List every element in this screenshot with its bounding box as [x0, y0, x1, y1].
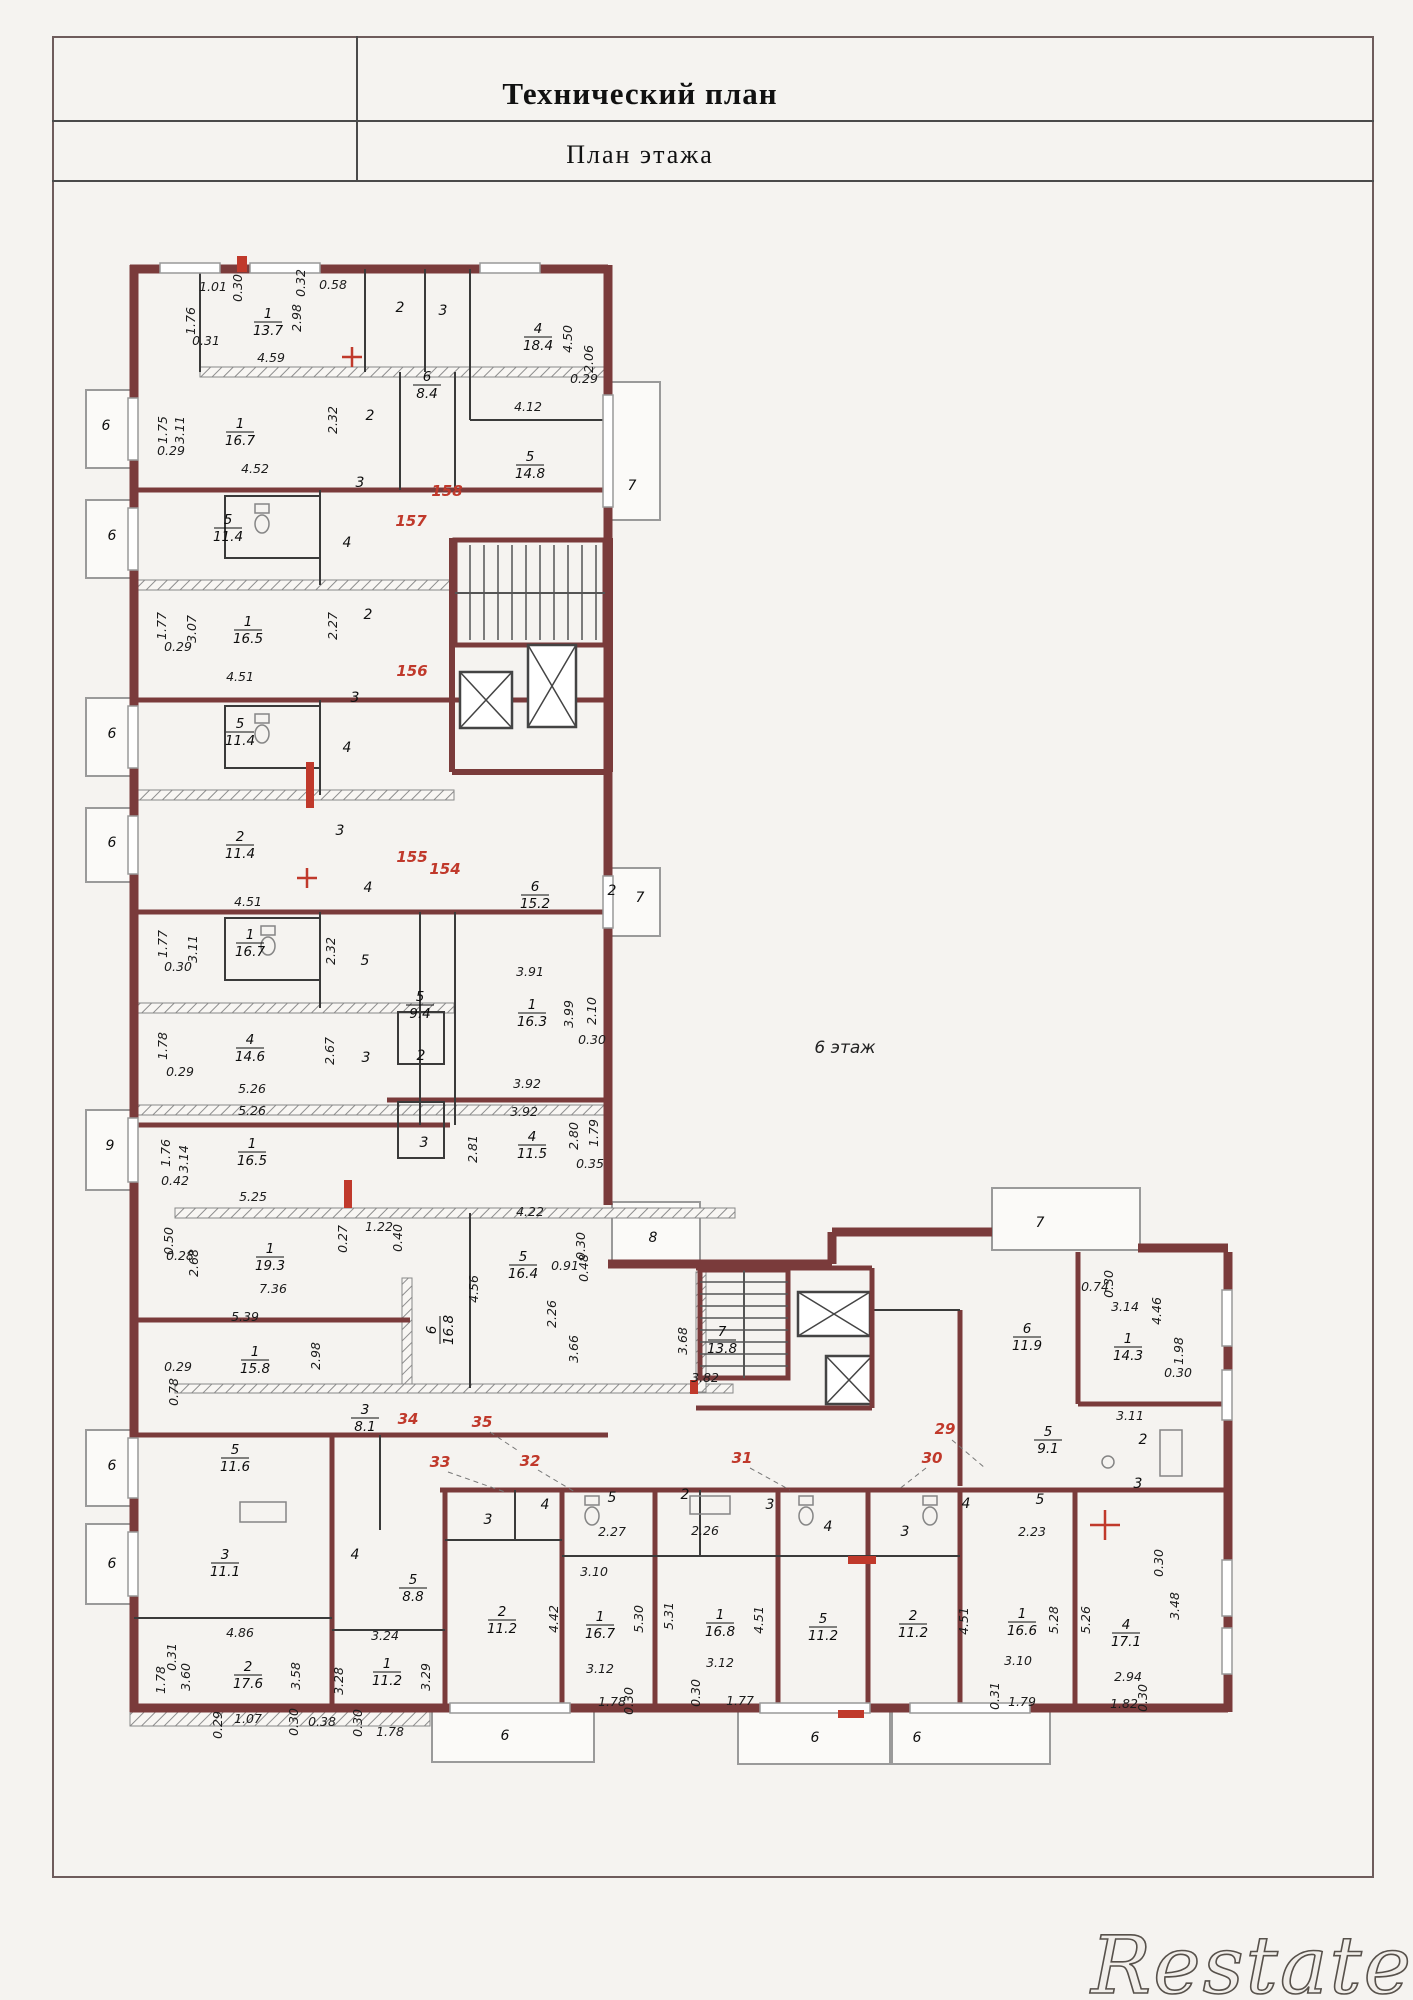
room-number: 1: [716, 1607, 725, 1623]
room-number: 4: [528, 1129, 537, 1145]
room-number: 5: [519, 1249, 528, 1265]
dimension-label: 2.27: [598, 1524, 626, 1539]
room-area: 11.9: [1012, 1338, 1042, 1354]
elevators-1: [452, 538, 610, 772]
room-number-label: 3: [484, 1512, 493, 1528]
room-label: 511.4: [225, 716, 255, 749]
room-label: 516.4: [508, 1249, 538, 1282]
watermark: Restate: [1091, 1926, 1413, 2000]
room-number: 6: [423, 369, 432, 385]
dimension-label: 2.32: [323, 937, 338, 965]
dimension-label: 1.76: [158, 1139, 173, 1167]
room-label: 616.8: [424, 1315, 457, 1345]
room-number-label: 3: [766, 1497, 775, 1513]
apartment-number: 30: [922, 1449, 943, 1467]
room-number: 5: [416, 989, 425, 1005]
room-number-label: 9: [106, 1138, 115, 1154]
dimension-label: 3.92: [510, 1104, 538, 1119]
room-number: 1: [248, 1136, 257, 1152]
staircase-2: [700, 1270, 788, 1378]
room-number-label: 7: [1036, 1215, 1045, 1231]
room-label: 211.2: [898, 1608, 928, 1641]
dimension-label: 0.48: [576, 1254, 591, 1282]
dimension-label: 1.77: [154, 612, 169, 640]
dimension-label: 0.30: [1151, 1549, 1166, 1577]
room-number: 2: [909, 1608, 918, 1624]
room-area: 17.1: [1111, 1634, 1141, 1650]
floor-plan: 6 этаж 1.010.300.322.980.581.760.314.592…: [0, 0, 1413, 2000]
room-area: 16.4: [508, 1266, 538, 1282]
room-area: 8.4: [416, 386, 437, 402]
dimension-label: 0.78: [166, 1378, 181, 1406]
dimension-label: 2.94: [1114, 1669, 1142, 1684]
dimension-label: 0.30: [1164, 1365, 1192, 1380]
room-area: 19.3: [255, 1258, 285, 1274]
apartment-number: 155: [396, 848, 427, 866]
apartment-number: 156: [396, 662, 427, 680]
dimension-label: 0.31: [987, 1682, 1002, 1710]
room-label: 514.8: [515, 449, 545, 482]
room-number: 3: [361, 1402, 370, 1418]
room-area: 11.1: [210, 1564, 240, 1580]
dimension-label: 3.10: [1004, 1653, 1032, 1668]
room-area: 16.6: [1007, 1623, 1037, 1639]
dimension-label: 3.10: [580, 1564, 608, 1579]
room-area: 11.2: [487, 1621, 517, 1637]
room-number: 5: [819, 1611, 828, 1627]
dimension-label: 3.12: [586, 1661, 614, 1676]
room-label: 713.8: [707, 1324, 737, 1357]
room-number: 2: [498, 1604, 507, 1620]
room-area: 11.2: [372, 1673, 402, 1689]
dimension-label: 2.06: [581, 345, 596, 373]
room-label: 119.3: [255, 1241, 285, 1274]
dimension-label: 0.30: [688, 1679, 703, 1707]
room-label: 115.8: [240, 1344, 270, 1377]
room-number-label: 5: [1036, 1492, 1045, 1508]
room-area: 15.2: [520, 896, 550, 912]
dimension-label: 4.52: [241, 461, 269, 476]
dimension-label: 0.29: [210, 1711, 225, 1739]
room-number-label: 5: [608, 1490, 617, 1506]
room-area: 16.8: [441, 1315, 457, 1345]
dimension-label: 2.27: [325, 612, 340, 640]
dimension-label: 1.98: [1171, 1337, 1186, 1365]
room-number-label: 2: [681, 1487, 690, 1503]
dimension-label: 1.76: [183, 307, 198, 335]
dimension-label: 1.79: [1008, 1694, 1036, 1709]
room-number-label: 3: [1134, 1476, 1143, 1492]
room-number-label: 2: [396, 300, 405, 316]
dimension-label: 2.98: [289, 304, 304, 332]
dimension-label: 1.75: [155, 416, 170, 444]
room-number: 1: [528, 997, 537, 1013]
dimension-label: 5.26: [1078, 1606, 1093, 1634]
apartment-number: 158: [431, 482, 462, 500]
room-number-label: 2: [608, 883, 617, 899]
dimension-label: 5.26: [238, 1103, 266, 1118]
room-number-label: 6: [811, 1730, 820, 1746]
room-number-label: 6: [108, 726, 117, 742]
dimension-label: 4.22: [516, 1204, 544, 1219]
room-area: 13.7: [253, 323, 283, 339]
dimension-label: 2.26: [544, 1300, 559, 1328]
room-label: 418.4: [523, 321, 553, 354]
room-area: 9.4: [409, 1006, 430, 1022]
room-number-label: 3: [356, 475, 365, 491]
room-label: 38.1: [351, 1402, 379, 1435]
room-area: 16.8: [705, 1624, 735, 1640]
room-number-label: 6: [108, 1458, 117, 1474]
dimension-label: 2.32: [325, 406, 340, 434]
room-number-label: 2: [417, 1048, 426, 1064]
apartment-number: 154: [429, 860, 460, 878]
room-area: 14.6: [235, 1049, 265, 1065]
dimension-label: 1.22: [365, 1219, 393, 1234]
room-number-label: 6: [108, 1556, 117, 1572]
dimension-label: 4.86: [226, 1625, 254, 1640]
room-label: 116.5: [233, 614, 263, 647]
room-area: 13.8: [707, 1341, 737, 1357]
dimension-label: 5.28: [1046, 1606, 1061, 1634]
room-label: 417.1: [1111, 1617, 1141, 1650]
room-number-label: 8: [649, 1230, 658, 1246]
apartment-number: 157: [395, 512, 427, 530]
room-number-label: 3: [351, 690, 360, 706]
room-number: 3: [221, 1547, 230, 1563]
room-area: 8.1: [354, 1419, 375, 1435]
room-area: 11.4: [213, 529, 243, 545]
dimension-label: 3.58: [288, 1662, 303, 1690]
dimension-label: 1.78: [155, 1032, 170, 1060]
dimension-label: 0.35: [576, 1156, 604, 1171]
dimension-label: 3.92: [513, 1076, 541, 1091]
apartment-number: 31: [732, 1449, 753, 1467]
dimension-label: 5.39: [231, 1309, 259, 1324]
floor-label: 6 этаж: [814, 1038, 876, 1058]
red-markers: [237, 256, 1120, 1718]
dimension-label: 0.30: [621, 1687, 636, 1715]
dimension-label: 5.26: [238, 1081, 266, 1096]
room-label: 615.2: [520, 879, 550, 912]
room-label: 116.3: [517, 997, 547, 1030]
apartment-number: 33: [430, 1453, 451, 1471]
room-area: 16.7: [585, 1626, 615, 1642]
room-number: 1: [244, 614, 253, 630]
dimension-label: 4.12: [514, 399, 542, 414]
room-area: 15.8: [240, 1361, 270, 1377]
room-number: 1: [246, 927, 255, 943]
dimension-label: 0.30: [286, 1708, 301, 1736]
dimension-label: 0.30: [230, 274, 245, 302]
room-area: 11.2: [808, 1628, 838, 1644]
room-label: 511.6: [220, 1442, 250, 1475]
dimension-label: 3.24: [371, 1628, 399, 1643]
room-label: 116.7: [225, 416, 255, 449]
room-number-label: 6: [108, 528, 117, 544]
room-label: 511.2: [808, 1611, 838, 1644]
room-label: 59.4: [406, 989, 434, 1022]
room-number: 1: [383, 1656, 392, 1672]
room-number: 1: [236, 416, 245, 432]
dimension-label: 3.48: [1167, 1592, 1182, 1620]
room-label: 414.6: [235, 1032, 265, 1065]
dimension-label: 0.30: [350, 1709, 365, 1737]
room-number: 2: [236, 829, 245, 845]
room-number: 5: [409, 1572, 418, 1588]
dimension-label: 4.51: [234, 894, 262, 909]
dimension-label: 0.40: [390, 1224, 405, 1252]
dimension-label: 2.67: [322, 1037, 337, 1065]
room-number-label: 5: [361, 953, 370, 969]
room-number: 5: [224, 512, 233, 528]
dimension-label: 3.91: [516, 964, 544, 979]
room-number-label: 3: [439, 303, 448, 319]
dimension-label: 4.56: [466, 1275, 481, 1303]
room-number: 1: [1018, 1606, 1027, 1622]
room-number: 6: [424, 1326, 440, 1335]
room-number: 6: [1023, 1321, 1032, 1337]
room-number: 1: [264, 306, 273, 322]
room-label: 611.9: [1012, 1321, 1042, 1354]
room-label: 114.3: [1113, 1331, 1143, 1364]
room-area: 9.1: [1037, 1441, 1058, 1457]
dimension-label: 3.14: [1111, 1299, 1139, 1314]
room-number-label: 4: [343, 740, 352, 756]
room-label: 311.1: [210, 1547, 240, 1580]
dimension-label: 3.99: [561, 1000, 576, 1028]
room-number: 4: [1122, 1617, 1131, 1633]
dimension-label: 0.29: [570, 371, 598, 386]
dimension-label: 2.80: [566, 1122, 581, 1150]
dimension-label: 0.29: [164, 639, 192, 654]
dimension-label: 0.42: [161, 1173, 189, 1188]
dimension-label: 5.25: [239, 1189, 267, 1204]
staircase-1: [455, 540, 605, 645]
dimension-label: 0.29: [166, 1064, 194, 1079]
dimension-label: 2.98: [308, 1342, 323, 1370]
room-number: 4: [534, 321, 543, 337]
room-number: 1: [251, 1344, 260, 1360]
apartment-number: 32: [520, 1452, 541, 1470]
room-number-label: 2: [366, 408, 375, 424]
dimension-label: 3.60: [178, 1663, 193, 1691]
room-label: 116.5: [237, 1136, 267, 1169]
dimension-label: 4.51: [956, 1607, 971, 1635]
dimension-label: 5.31: [661, 1602, 676, 1630]
dimension-label: 2.10: [584, 997, 599, 1025]
dimension-label: 0.30: [164, 959, 192, 974]
dimension-label: 5.30: [631, 1605, 646, 1633]
room-number-label: 6: [913, 1730, 922, 1746]
dimension-label: 3.66: [566, 1335, 581, 1363]
room-label: 211.2: [487, 1604, 517, 1637]
dimension-label: 3.28: [331, 1667, 346, 1695]
room-number: 2: [244, 1659, 253, 1675]
dimension-label: 1.77: [726, 1693, 754, 1708]
dimension-label: 3.11: [172, 416, 187, 444]
room-area: 16.7: [225, 433, 255, 449]
room-label: 116.6: [1007, 1606, 1037, 1639]
room-number-label: 7: [636, 890, 645, 906]
room-label: 217.6: [233, 1659, 263, 1692]
room-area: 16.3: [517, 1014, 547, 1030]
room-number: 5: [236, 716, 245, 732]
room-area: 11.4: [225, 733, 255, 749]
dimension-label: 3.11: [1116, 1408, 1144, 1423]
room-number: 1: [266, 1241, 275, 1257]
dimension-label: 4.59: [257, 350, 285, 365]
dimension-label: 0.29: [157, 443, 185, 458]
dimension-label: 0.30: [578, 1032, 606, 1047]
room-number: 1: [1124, 1331, 1133, 1347]
room-area: 18.4: [523, 338, 553, 354]
dimension-label: 1.78: [376, 1724, 404, 1739]
room-number: 5: [526, 449, 535, 465]
room-number: 5: [1044, 1424, 1053, 1440]
room-number: 6: [531, 879, 540, 895]
dimension-label: 3.82: [691, 1370, 719, 1385]
dimension-label: 2.26: [691, 1523, 719, 1538]
dimension-label: 0.58: [319, 277, 347, 292]
room-label: 116.8: [705, 1607, 735, 1640]
dimension-label: 1.78: [153, 1666, 168, 1694]
dimension-label: 0.27: [335, 1225, 350, 1253]
room-label: 59.1: [1034, 1424, 1062, 1457]
dimension-label: 4.51: [751, 1606, 766, 1634]
room-label: 113.7: [253, 306, 283, 339]
room-number-label: 3: [336, 823, 345, 839]
dimension-label: 1.07: [234, 1711, 262, 1726]
room-label: 111.2: [372, 1656, 402, 1689]
dimension-label: 4.51: [226, 669, 254, 684]
room-area: 11.5: [517, 1146, 547, 1162]
room-area: 16.5: [233, 631, 263, 647]
room-label: 58.8: [399, 1572, 427, 1605]
room-number-label: 4: [351, 1547, 360, 1563]
room-number-label: 4: [541, 1497, 550, 1513]
room-area: 16.7: [235, 944, 265, 960]
exterior-walls: [130, 265, 1228, 1712]
room-number: 7: [718, 1324, 727, 1340]
room-area: 16.5: [237, 1153, 267, 1169]
room-number-label: 6: [102, 418, 111, 434]
dimension-label: 0.38: [308, 1714, 336, 1729]
room-number-label: 3: [362, 1050, 371, 1066]
partition-walls: [130, 367, 735, 1726]
dimension-label: 0.32: [293, 269, 308, 297]
dimension-label: 2.81: [465, 1135, 480, 1163]
dimension-label: 0.30: [1101, 1270, 1116, 1298]
dimension-label: 3.14: [176, 1145, 191, 1173]
room-number: 1: [596, 1609, 605, 1625]
dimension-label: 4.50: [560, 325, 575, 353]
dimension-label: 3.12: [706, 1655, 734, 1670]
room-label: 411.5: [517, 1129, 547, 1162]
room-area: 8.8: [402, 1589, 423, 1605]
dimension-label: 1.77: [155, 930, 170, 958]
dimension-label: 1.82: [1110, 1696, 1138, 1711]
dimension-label: 1.01: [199, 279, 227, 294]
room-area: 14.3: [1113, 1348, 1143, 1364]
room-number: 4: [246, 1032, 255, 1048]
apartment-number: 34: [398, 1410, 419, 1428]
room-number-label: 4: [364, 880, 373, 896]
room-label: 211.4: [225, 829, 255, 862]
dimension-label: 3.29: [418, 1663, 433, 1691]
dimension-label: 3.68: [675, 1327, 690, 1355]
dimension-label: 2.68: [186, 1249, 201, 1277]
dimension-label: 0.29: [164, 1359, 192, 1374]
room-number-label: 6: [501, 1728, 510, 1744]
dimension-label: 2.23: [1018, 1524, 1046, 1539]
room-number-label: 7: [628, 478, 637, 494]
apartment-number: 35: [472, 1413, 493, 1431]
room-label: 116.7: [585, 1609, 615, 1642]
room-label: 511.4: [213, 512, 243, 545]
room-area: 11.6: [220, 1459, 250, 1475]
room-area: 11.4: [225, 846, 255, 862]
dimension-label: 4.46: [1149, 1297, 1164, 1325]
room-number-label: 3: [420, 1135, 429, 1151]
dimension-label: 4.42: [546, 1605, 561, 1633]
dimension-label: 0.31: [192, 333, 220, 348]
room-number-label: 3: [901, 1524, 910, 1540]
room-area: 17.6: [233, 1676, 263, 1692]
dimension-label: 0.30: [1135, 1684, 1150, 1712]
room-number-label: 4: [824, 1519, 833, 1535]
apartment-number: 29: [935, 1420, 956, 1438]
room-area: 11.2: [898, 1625, 928, 1641]
interior-walls: [134, 490, 1228, 1708]
room-number-label: 6: [108, 835, 117, 851]
room-number-label: 4: [962, 1496, 971, 1512]
dimension-label: 1.79: [586, 1119, 601, 1147]
room-area: 14.8: [515, 466, 545, 482]
room-number-label: 2: [364, 607, 373, 623]
room-number: 5: [231, 1442, 240, 1458]
dimension-label: 7.36: [259, 1281, 287, 1296]
room-number-label: 2: [1139, 1432, 1148, 1448]
room-number-label: 4: [343, 535, 352, 551]
document-page: Технический план План этажа: [0, 0, 1413, 2000]
